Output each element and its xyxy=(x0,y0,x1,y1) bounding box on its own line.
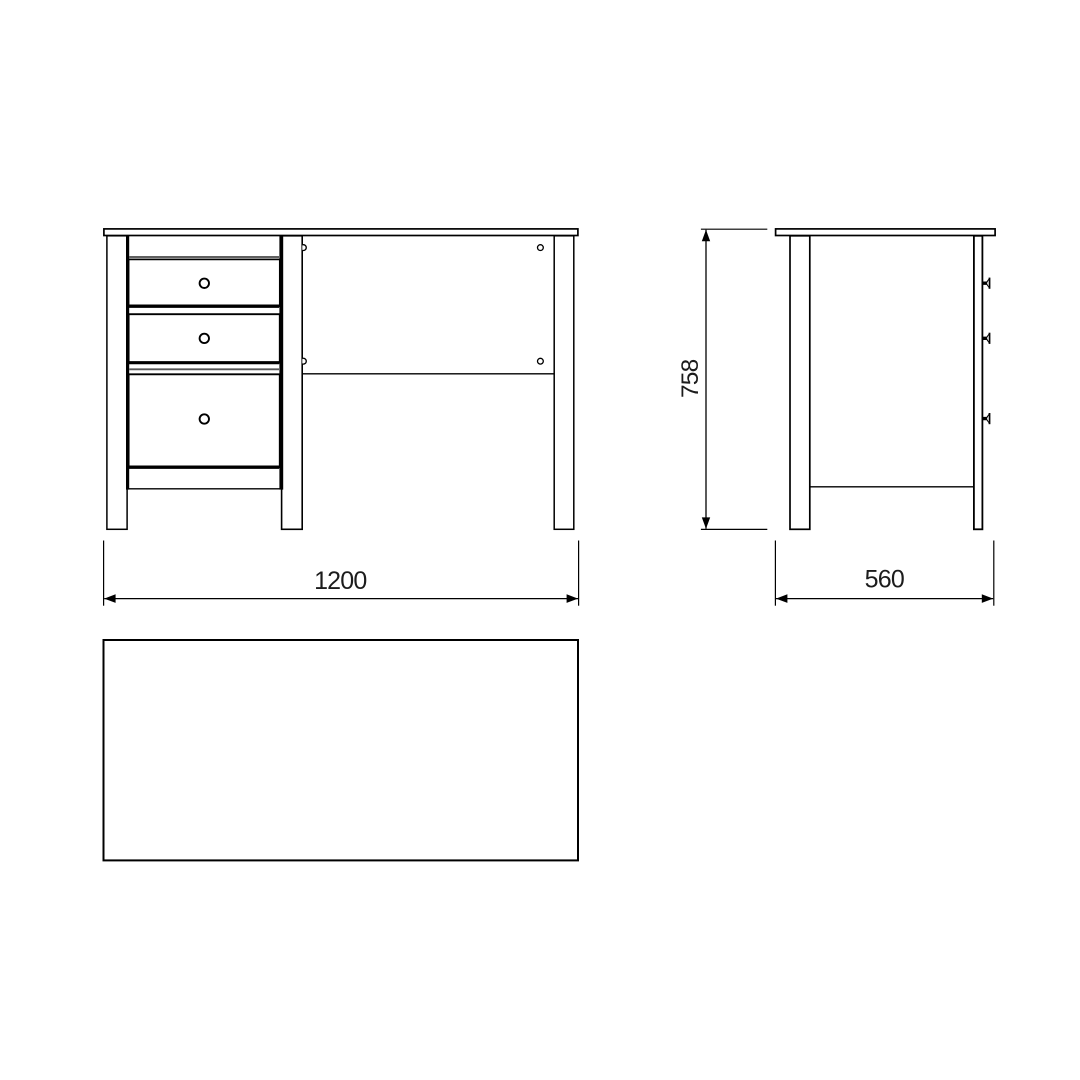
svg-text:560: 560 xyxy=(865,566,904,594)
svg-text:1200: 1200 xyxy=(314,567,366,595)
svg-text:758: 758 xyxy=(677,359,704,398)
